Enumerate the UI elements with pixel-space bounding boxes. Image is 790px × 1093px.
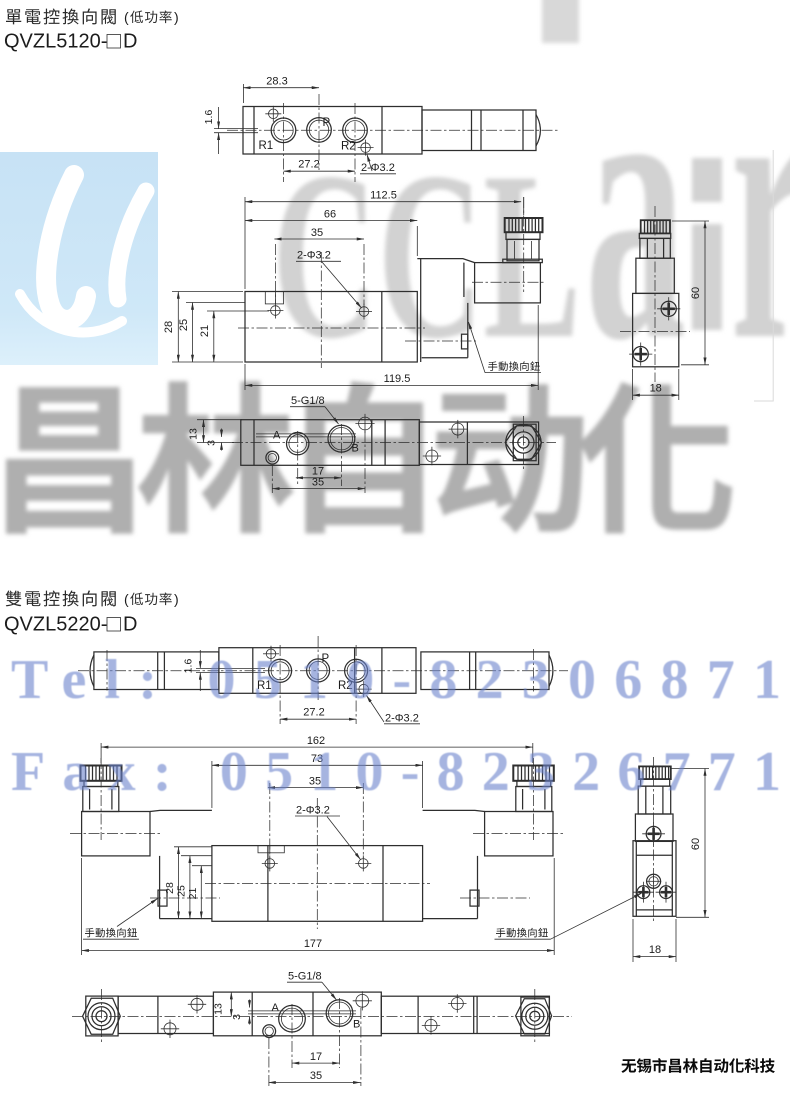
svg-text:(: ( [124,591,129,607]
svg-text:21: 21 [199,325,211,337]
svg-text:A: A [273,430,281,442]
svg-text:25: 25 [176,885,188,897]
svg-text:2-Φ3.2: 2-Φ3.2 [297,250,331,262]
svg-text:60: 60 [690,287,702,299]
svg-text:5-G1/8: 5-G1/8 [288,971,322,983]
svg-text:17: 17 [310,1051,322,1063]
svg-text:35: 35 [310,1070,322,1082]
svg-text:25: 25 [178,319,190,331]
svg-text:P: P [323,117,331,129]
svg-text:): ) [174,9,179,25]
svg-text:13: 13 [188,428,200,440]
svg-text:1.6: 1.6 [203,110,215,125]
svg-text:35: 35 [311,227,323,239]
svg-text:13: 13 [213,1003,225,1015]
svg-text:60: 60 [690,838,702,850]
svg-text:QVZL5220-: QVZL5220- [4,614,107,636]
svg-text:R2: R2 [341,141,356,153]
svg-text:3: 3 [206,440,218,446]
svg-text:B: B [352,443,359,455]
svg-text:28: 28 [164,882,176,894]
svg-text:5-G1/8: 5-G1/8 [291,395,325,407]
svg-text:177: 177 [304,938,322,950]
svg-text:18: 18 [650,383,662,395]
svg-text:28.3: 28.3 [266,76,287,88]
svg-text:D: D [123,614,137,636]
svg-text:A: A [272,1002,280,1014]
svg-text:2-Φ3.2: 2-Φ3.2 [296,805,330,817]
svg-text:D: D [123,31,137,53]
svg-text:2-Φ3.2: 2-Φ3.2 [385,713,419,725]
svg-text:a: a [585,0,686,421]
svg-text:21: 21 [187,888,199,900]
svg-text:112.5: 112.5 [370,190,397,202]
svg-text:119.5: 119.5 [384,373,411,385]
svg-text:18: 18 [649,944,661,956]
svg-text:66: 66 [324,209,336,221]
svg-text:35: 35 [312,476,324,488]
svg-text:3: 3 [231,1014,243,1020]
svg-text:(: ( [124,9,129,25]
svg-text:27.2: 27.2 [298,159,319,171]
svg-text:): ) [174,591,179,607]
svg-text:r: r [731,0,790,421]
svg-text:QVZL5120-: QVZL5120- [4,31,107,53]
svg-text:B: B [353,1019,360,1031]
svg-text:R1: R1 [259,140,274,152]
svg-text:28: 28 [163,321,175,333]
svg-text:2-Φ3.2: 2-Φ3.2 [361,162,395,174]
